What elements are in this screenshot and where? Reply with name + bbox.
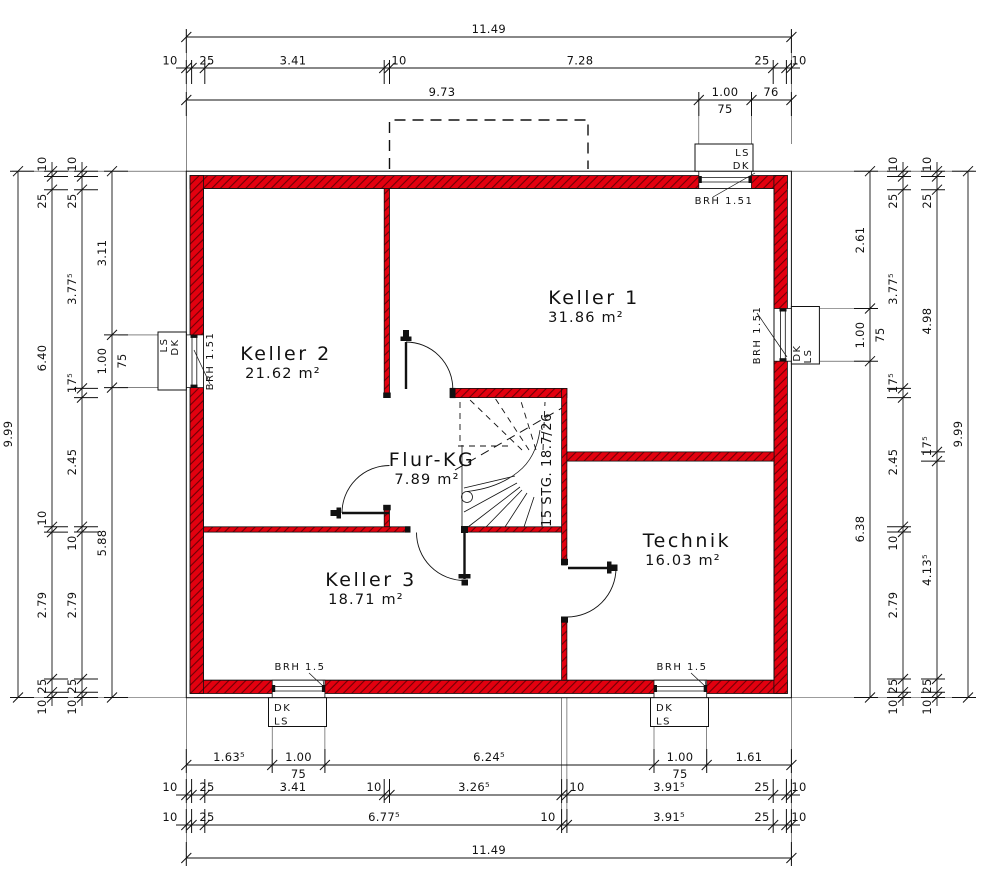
dim-value: 1.63⁵ [213, 750, 245, 764]
dim-value: 3.77⁵ [886, 273, 900, 305]
dim-value: 75 [291, 767, 306, 781]
dim-value: 2.79 [65, 592, 79, 619]
window-sill-height-label: BRH 1.51 [205, 332, 216, 391]
dim-value: 11.49 [472, 843, 506, 857]
exterior-walls [186, 171, 791, 698]
dim-value: 75 [717, 102, 732, 116]
dim-chain-left-1: 9.99 [1, 166, 34, 702]
dim-chain-left-2: 10 25 6.40 10 2.79 25 10 [35, 156, 68, 714]
dim-value: 25 [199, 54, 214, 68]
room-name: Flur-KG [389, 449, 475, 471]
dim-value: 10 [65, 156, 79, 171]
dim-value: 75 [115, 353, 129, 368]
dim-value: 10 [920, 699, 934, 714]
dim-value: 10 [886, 535, 900, 550]
dim-value: 25 [199, 810, 214, 824]
dim-value: 1.61 [736, 750, 763, 764]
dim-row-bottom-2: 10 25 3.41 10 3.26⁵ 10 3.91⁵ 25 10 [162, 779, 806, 803]
dim-value: 9.73 [429, 85, 456, 99]
dim-value: 3.11 [95, 240, 109, 267]
window-opening-label: DK [274, 703, 291, 714]
dim-value: 25 [65, 678, 79, 693]
dim-value: 3.41 [280, 780, 307, 794]
dim-value: 10 [65, 535, 79, 550]
window-sill-height-label: BRH 1.51 [752, 306, 763, 365]
dim-value: 25 [35, 193, 49, 208]
dim-value: 10 [162, 54, 177, 68]
dim-value: 10 [569, 780, 584, 794]
window-opening-label: LS [803, 349, 814, 364]
dim-value: 1.00 [667, 750, 694, 764]
dim-value: 2.79 [35, 592, 49, 619]
dim-value: 10 [162, 780, 177, 794]
room-label-technik: Technik 16.03 m² [642, 530, 731, 569]
dim-chain-left-3: 10 25 3.77⁵ 17⁵ 2.45 10 2.79 25 10 [65, 156, 98, 714]
room-name: Keller 2 [240, 343, 331, 365]
window-opening-label: LS [159, 338, 170, 353]
dim-value: 25 [35, 678, 49, 693]
dim-row-bottom-3: 10 25 6.77⁵ 10 3.91⁵ 25 10 [162, 809, 806, 833]
floor-plan-page: 15 STG. 18.7/26 LS DK BRH 1.51 LS DK BRH… [0, 0, 1000, 883]
room-area: 31.86 m² [548, 310, 624, 326]
stair-label: 15 STG. 18.7/26 [540, 413, 555, 527]
dim-value: 17⁵ [886, 373, 900, 393]
dim-chain-right-4: 9.99 [951, 166, 976, 702]
dim-value: 10 [920, 156, 934, 171]
dim-chain-left-4: 3.11 1.00 75 5.88 [95, 166, 129, 702]
dim-value: 9.99 [1, 421, 15, 448]
window-bottom-left: DK LS BRH 1.5 [269, 662, 327, 728]
dim-value: 75 [672, 767, 687, 781]
dim-value: 25 [920, 678, 934, 693]
dim-value: 10 [391, 54, 406, 68]
room-name: Technik [642, 530, 731, 552]
room-area: 7.89 m² [394, 472, 459, 488]
dim-value: 3.77⁵ [65, 273, 79, 305]
dim-value: 10 [65, 699, 79, 714]
dim-value: 9.99 [951, 421, 965, 448]
room-label-keller3: Keller 3 18.71 m² [325, 569, 416, 608]
dim-value: 76 [763, 85, 778, 99]
dim-value: 10 [540, 810, 555, 824]
dim-value: 1.00 [712, 85, 739, 99]
room-area: 21.62 m² [245, 366, 321, 382]
dim-value: 1.00 [285, 750, 312, 764]
window-bottom-right: DK LS BRH 1.5 [651, 662, 709, 728]
dim-value: 10 [791, 54, 806, 68]
window-left: LS DK BRH 1.51 [158, 332, 216, 391]
dim-value: 3.26⁵ [458, 780, 490, 794]
window-opening-label: DK [170, 338, 181, 355]
dim-value: 10 [35, 699, 49, 714]
dim-chain-right-3: 10 25 4.98 17⁵ 4.13⁵ 25 10 [920, 156, 945, 714]
window-sill-height-label: BRH 1.5 [275, 662, 326, 673]
dim-value: 6.77⁵ [368, 810, 400, 824]
dim-value: 6.24⁵ [473, 750, 505, 764]
dim-chain-right-1: 2.61 1.00 75 6.38 [853, 166, 887, 702]
room-name: Keller 3 [325, 569, 416, 591]
dim-value: 10 [35, 156, 49, 171]
room-area: 18.71 m² [328, 592, 404, 608]
dim-value: 4.98 [920, 308, 934, 335]
room-area: 16.03 m² [645, 553, 721, 569]
dim-value: 7.28 [567, 54, 594, 68]
dim-value: 1.00 [95, 348, 109, 375]
dim-value: 2.79 [886, 592, 900, 619]
dim-value: 4.13⁵ [920, 554, 934, 586]
dim-value: 17⁵ [920, 436, 934, 456]
dim-row-top-2: 10 25 3.41 10 7.28 25 10 [162, 54, 806, 85]
dim-value: 25 [199, 780, 214, 794]
dim-value: 10 [162, 810, 177, 824]
dashed-projection-outline [390, 120, 589, 169]
room-label-keller2: Keller 2 21.62 m² [240, 343, 331, 382]
dim-value: 5.88 [95, 530, 109, 557]
dim-value: 2.45 [886, 449, 900, 476]
dim-value: 25 [886, 193, 900, 208]
dim-value: 2.45 [65, 449, 79, 476]
dim-value: 10 [886, 156, 900, 171]
window-opening-label: DK [792, 344, 803, 361]
floor-plan-canvas: 15 STG. 18.7/26 LS DK BRH 1.51 LS DK BRH… [0, 0, 1000, 883]
dim-value: 6.38 [853, 516, 867, 543]
dim-value: 25 [65, 193, 79, 208]
dim-value: 6.40 [35, 345, 49, 372]
dim-value: 3.41 [280, 54, 307, 68]
dim-value: 3.91⁵ [653, 780, 685, 794]
dim-row-bottom-4: 11.49 [181, 842, 796, 866]
dim-value: 10 [35, 510, 49, 525]
dim-row-bottom-1: 1.63⁵ 1.00 75 6.24⁵ 1.00 75 1.61 [181, 749, 796, 781]
dim-value: 11.49 [472, 22, 506, 36]
dim-row-top-3: 9.73 1.00 75 76 [181, 85, 796, 116]
dim-value: 10 [791, 810, 806, 824]
dim-value: 25 [754, 780, 769, 794]
window-opening-label: DK [733, 161, 750, 172]
room-name: Keller 1 [548, 287, 639, 309]
window-opening-label: DK [656, 703, 673, 714]
window-top-right: LS DK BRH 1.51 [695, 144, 755, 207]
dim-value: 17⁵ [65, 373, 79, 393]
dim-value: 10 [886, 699, 900, 714]
dim-value: 25 [754, 54, 769, 68]
window-opening-label: LS [656, 717, 671, 728]
dim-value: 1.00 [853, 322, 867, 349]
dim-value: 75 [873, 327, 887, 342]
window-right: DK LS BRH 1.51 [752, 306, 819, 365]
window-opening-label: LS [274, 717, 289, 728]
dim-chain-right-2: 10 25 3.77⁵ 17⁵ 2.45 10 2.79 25 10 [886, 156, 911, 714]
dim-value: 10 [366, 780, 381, 794]
dim-value: 25 [886, 678, 900, 693]
dim-value: 25 [920, 193, 934, 208]
window-sill-height-label: BRH 1.5 [657, 662, 708, 673]
dim-row-top-1: 11.49 [181, 22, 796, 53]
window-sill-height-label: BRH 1.51 [695, 196, 754, 207]
dim-value: 25 [754, 810, 769, 824]
dim-value: 3.91⁵ [653, 810, 685, 824]
window-opening-label: LS [735, 148, 750, 159]
dim-value: 2.61 [853, 227, 867, 254]
dim-value: 10 [791, 780, 806, 794]
